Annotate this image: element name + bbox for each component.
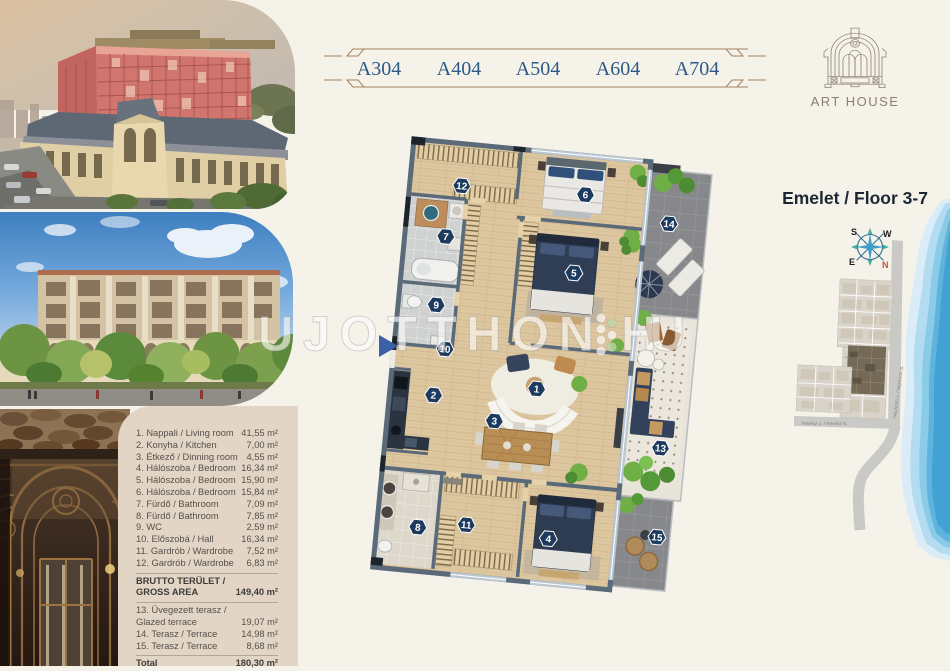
svg-text:Révész u. / Révész st.: Révész u. / Révész st. — [802, 421, 848, 426]
svg-text:ART HOUSE: ART HOUSE — [811, 94, 900, 109]
svg-text:A504: A504 — [516, 58, 560, 80]
svg-text:A404: A404 — [437, 58, 481, 80]
svg-text:14: 14 — [663, 219, 676, 231]
svg-text:11: 11 — [460, 520, 472, 532]
svg-text:HU: HU — [621, 308, 685, 362]
svg-text:13: 13 — [654, 443, 667, 455]
svg-text:A604: A604 — [596, 58, 640, 80]
svg-text:15: 15 — [651, 532, 664, 544]
svg-text:A304: A304 — [357, 58, 401, 80]
svg-text:12: 12 — [456, 181, 469, 193]
svg-text:A704: A704 — [675, 58, 719, 80]
svg-text:UJOTTHON: UJOTTHON — [258, 308, 594, 362]
